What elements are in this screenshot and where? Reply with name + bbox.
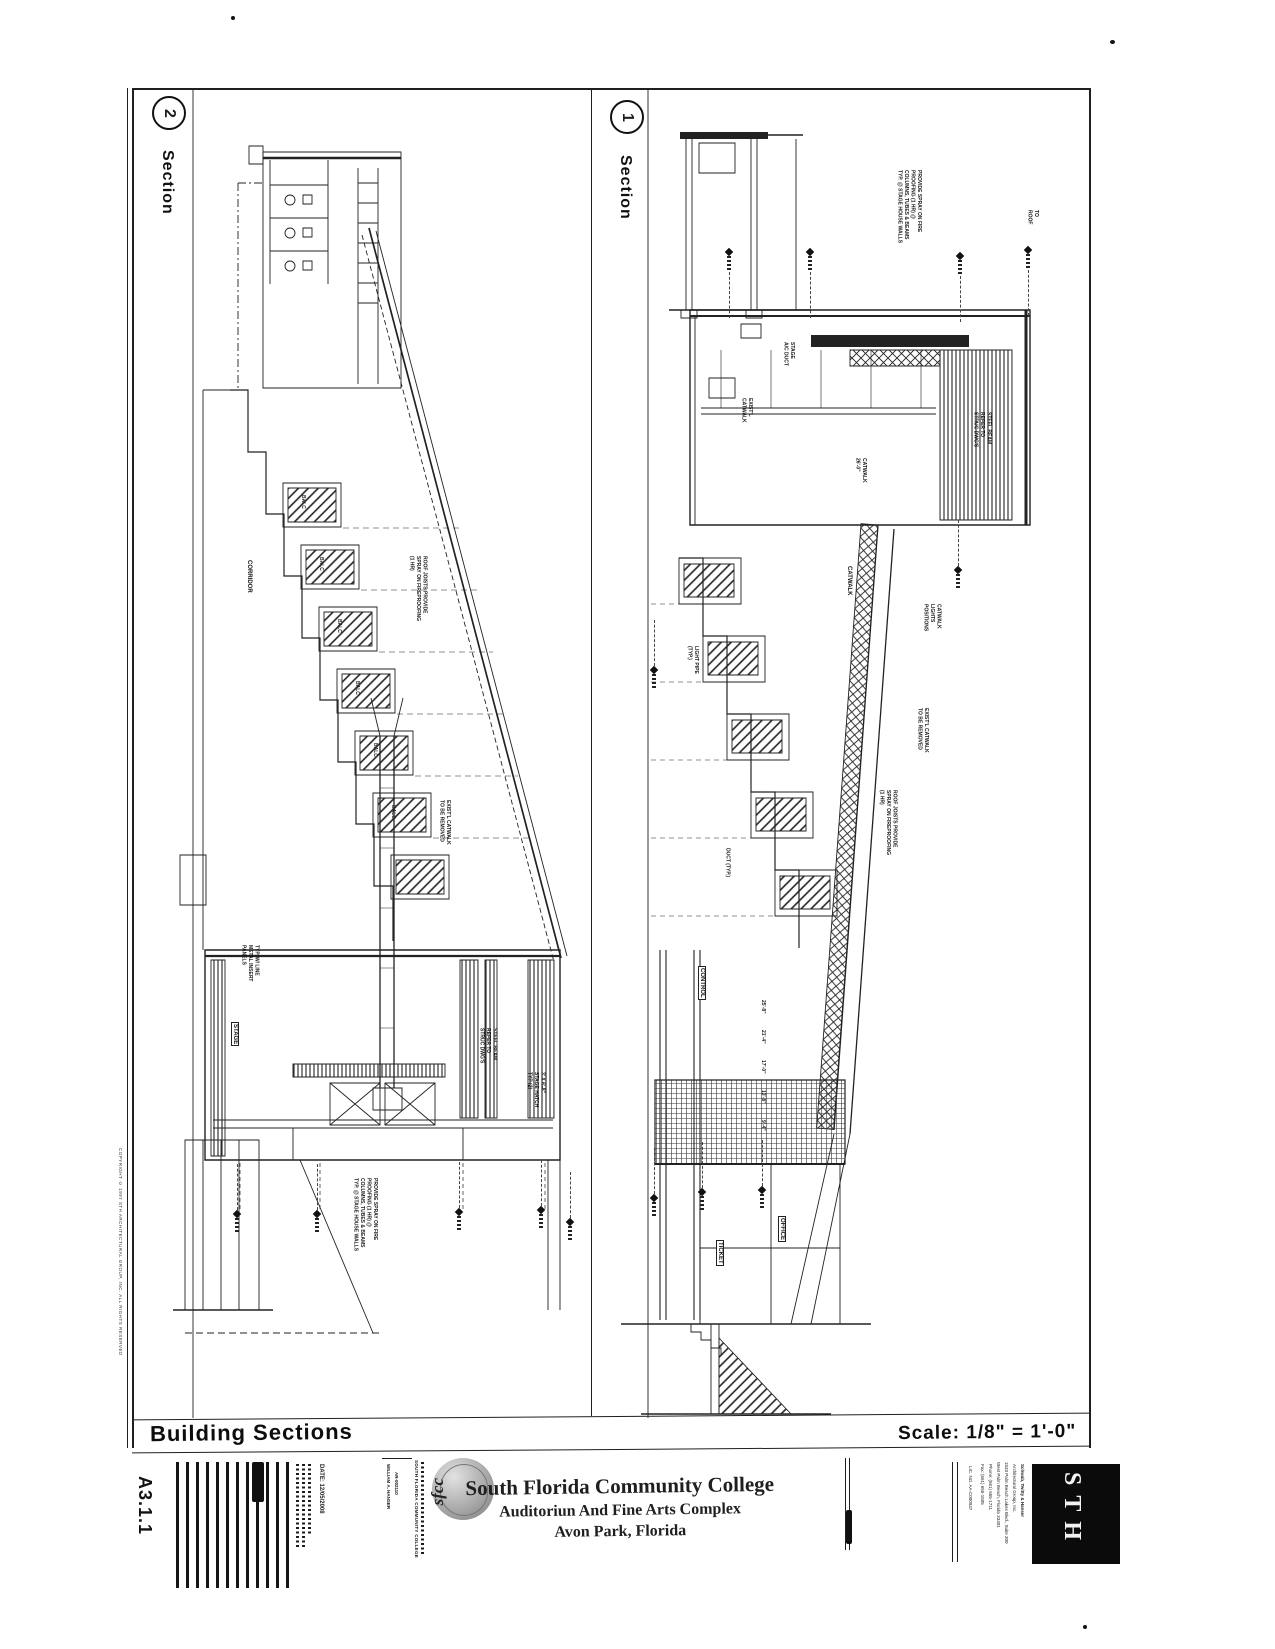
- architect-line: West Palm Beach, Florida 33401: [994, 1462, 1001, 1528]
- room-label: CONTROL: [698, 966, 706, 1000]
- elevation-marker: [537, 1160, 547, 1230]
- sheet-number: A3.1.1: [134, 1476, 155, 1535]
- college-name: South Florida Community College: [455, 1472, 785, 1502]
- sheet-scale: Scale: 1/8" = 1'-0": [898, 1421, 1077, 1445]
- seating-steps: [651, 558, 837, 948]
- elevation-marker: [233, 1164, 243, 1234]
- elevation-marker: [1024, 246, 1034, 316]
- elevation-marker: [758, 1140, 768, 1210]
- architect-stamp-name: WILLIAM A. HANSER: [386, 1464, 391, 1509]
- annotation: STEEL BEAM REFER TO STRUC DWG'S: [972, 412, 992, 447]
- elevation-marker: [806, 248, 816, 318]
- annotation: EXIST'L CATWALK TO BE REMOVED: [916, 708, 929, 753]
- roof-structure-top: [669, 132, 811, 318]
- project-location: Avon Park, Florida: [455, 1521, 785, 1544]
- annotation: 3' X 6'-8" STAGE HATCH TYP (2): [526, 1072, 546, 1107]
- annotation: TYP. W/ LINE METAL INSERT PANELS: [240, 945, 260, 981]
- stamp-rule: [382, 1458, 412, 1459]
- scan-speck: [231, 16, 235, 20]
- copyright-note: COPYRIGHT © 1997 STH ARCHITECTURAL GROUP…: [118, 1148, 123, 1356]
- dimension: 25'-8": [760, 1000, 766, 1014]
- annotation: ROOF JOISTS PROVIDE SPRAY ON FIREPROOFIN…: [408, 556, 428, 621]
- elevation-marker: [455, 1162, 465, 1232]
- sheet-title: Building Sections: [150, 1419, 353, 1447]
- dimension: 13'-8": [760, 1090, 766, 1104]
- step-label: BALC: [318, 557, 324, 571]
- elevation-marker: [566, 1172, 576, 1242]
- elevation-marker: [725, 248, 735, 318]
- scan-speck: [1110, 40, 1115, 44]
- annotation: LIGHT PIPE (TYP.): [686, 646, 699, 674]
- room-label: TICKET: [716, 1240, 724, 1266]
- step-label: BALC: [336, 619, 342, 633]
- step-label: BALC: [372, 743, 378, 757]
- divider-blob: [846, 1510, 852, 1544]
- plot-date: DATE: 12/05/2008: [318, 1464, 324, 1514]
- dimension: 9'-4": [760, 1120, 766, 1131]
- sfcc-logo-text: sfcc: [428, 1478, 448, 1505]
- scan-speck: [1083, 1625, 1087, 1629]
- dimension: 17'-0": [760, 1060, 766, 1074]
- architect-line: LIC. NO. AA-C000937: [966, 1466, 973, 1510]
- annotation: DUCT (TYP.): [724, 848, 731, 877]
- scanned-drawing-sheet: 2 Section 1 Section: [0, 0, 1275, 1649]
- elevation-marker: [650, 620, 660, 690]
- annotation: TO ROOF: [1026, 210, 1039, 224]
- elevation-marker: [650, 1148, 660, 1218]
- sth-logo: STH: [1032, 1464, 1120, 1564]
- architect-rule: [952, 1462, 953, 1562]
- architect-line: Schwab, Twitty & Hanser: [1018, 1464, 1025, 1517]
- annotation: STAGE A/C DUCT: [782, 342, 795, 366]
- step-label: BALC: [390, 805, 396, 819]
- revision-text-smudge: [308, 1464, 311, 1534]
- section-1-drawing: [591, 88, 1091, 1418]
- annotation: PROVIDE SPRAY ON FIRE PROOFING (1 HR) @ …: [896, 170, 922, 243]
- revision-bars: [176, 1462, 294, 1588]
- architect-rule: [957, 1462, 958, 1562]
- step-label: BALC: [354, 681, 360, 695]
- annotation: CATWALK LIGHTS POSITIONS: [922, 604, 942, 631]
- revision-text-smudge: [302, 1464, 305, 1549]
- fly-tower: [249, 146, 401, 388]
- annotation: PROVIDE SPRAY ON FIRE PROOFING (1 HR) @ …: [352, 1178, 378, 1251]
- annotation: CATWALK 26'-0": [854, 458, 867, 483]
- room-label: STAGE: [231, 1022, 239, 1046]
- architect-stamp-license: AR-002110: [394, 1472, 399, 1495]
- raked-roof: [238, 183, 567, 962]
- seating-steps: [203, 390, 531, 950]
- revision-blob: [252, 1462, 264, 1502]
- sth-logo-text: STH: [1058, 1472, 1085, 1550]
- annotation: EXIST'L CATWALK TO BE REMOVED: [438, 800, 451, 845]
- campus-smudge: [421, 1462, 424, 1554]
- elevation-marker: [698, 1142, 708, 1212]
- title-strip-bottom: [132, 1446, 1089, 1454]
- room-label: CATWALK: [846, 566, 852, 596]
- room-label: CORRIDOR: [246, 560, 252, 593]
- dimension: 21'-4": [760, 1030, 766, 1044]
- sheet-border-left-outer: [127, 88, 128, 1448]
- project-identification: South Florida Community College Auditori…: [455, 1472, 786, 1544]
- architect-line: Phone: (561) 655-1711: [986, 1464, 993, 1510]
- project-name: Auditoriun And Fine Arts Complex: [455, 1500, 785, 1523]
- architect-line: 1533 Palm Beach Lakes Blvd., Suite 300: [1002, 1462, 1009, 1544]
- step-label: BALC: [300, 495, 306, 509]
- annotation: STEEL BEAM REFER TO STRUC DWG'S: [478, 1028, 498, 1063]
- annotation: EXIST'L CATWALK: [740, 398, 753, 423]
- elevation-marker: [956, 252, 966, 322]
- elevation-marker: [313, 1164, 323, 1234]
- campus-caption: SOUTH FLORIDA COMMUNITY COLLEGE: [414, 1460, 419, 1558]
- elevation-marker: [954, 520, 964, 590]
- room-label: OFFICE: [778, 1216, 786, 1242]
- revision-text-smudge: [296, 1464, 299, 1549]
- annotation: ROOF JOISTS PROVIDE SPRAY ON FIREPROOFIN…: [878, 790, 898, 855]
- architect-line: Architectural Group, Inc.: [1010, 1464, 1017, 1513]
- architect-line: Fax: (561) 655-1505: [978, 1464, 985, 1505]
